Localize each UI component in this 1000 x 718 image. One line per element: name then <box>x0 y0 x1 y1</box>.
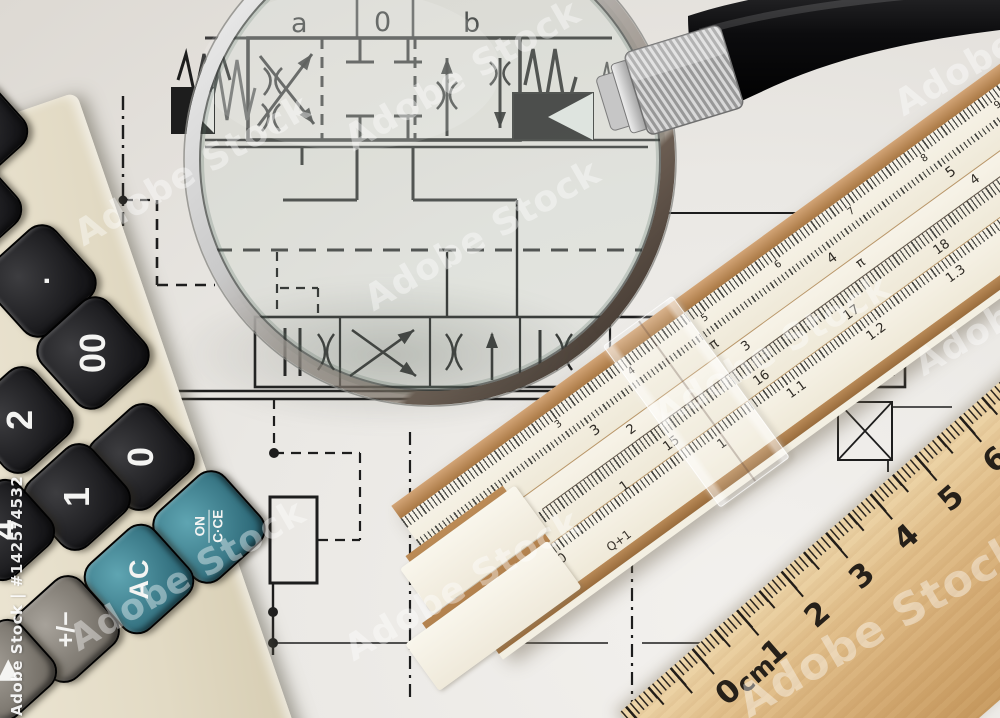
key-label: ONC·CE <box>192 511 225 544</box>
key-label: . <box>23 277 57 285</box>
scale-number: 3 <box>738 338 756 358</box>
scale-number: 4 <box>967 171 985 191</box>
key-label: 00 <box>72 333 114 373</box>
key-label-line: C·CE <box>208 511 226 544</box>
scale-number: 8 <box>919 152 933 168</box>
scale-number: 7 <box>846 205 860 221</box>
stock-photo-scene: a 0 b 3 4 5 6 <box>0 0 1000 718</box>
key-label: 0 <box>120 447 162 467</box>
key-label: +/− <box>52 611 81 647</box>
scale-number: 5 <box>699 312 713 328</box>
key-label: AC <box>124 559 155 600</box>
key-label: 1 <box>56 487 98 507</box>
scale-number: 9 <box>992 99 1000 115</box>
scale-number: 3 <box>553 418 567 434</box>
watermark-id-text: Adobe Stock | #142574532 <box>8 476 26 716</box>
scale-number: 6 <box>772 259 786 275</box>
scale-number: 2 <box>624 421 642 441</box>
key-label-line: ON <box>192 517 207 537</box>
scale-number: π <box>853 255 871 275</box>
key-label: 2 <box>0 410 41 430</box>
